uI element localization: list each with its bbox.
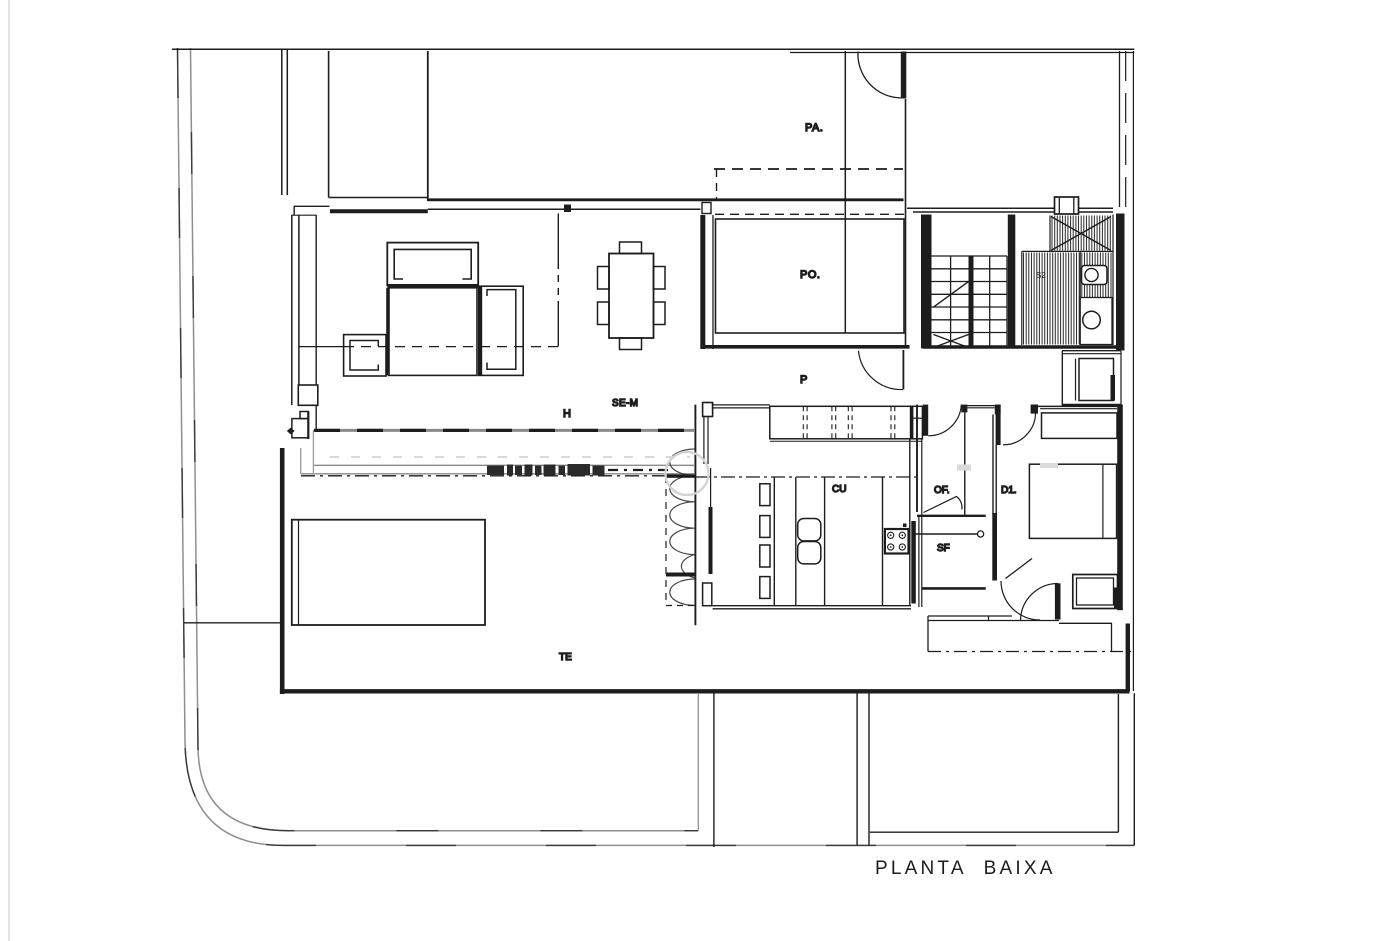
svg-text:P: P — [800, 374, 807, 386]
svg-text:PO.: PO. — [800, 269, 820, 281]
svg-text:H: H — [563, 408, 571, 420]
svg-text:PLANTA BAIXA: PLANTA BAIXA — [875, 858, 1056, 879]
svg-text:CU: CU — [832, 484, 846, 495]
svg-text:PA.: PA. — [805, 122, 823, 134]
svg-text:TE: TE — [559, 652, 572, 663]
svg-text:D1.: D1. — [1001, 485, 1017, 496]
svg-text:S2: S2 — [1036, 271, 1046, 280]
svg-text:SF: SF — [937, 543, 950, 554]
svg-text:SE-M: SE-M — [612, 398, 638, 409]
svg-text:OF.: OF. — [934, 485, 950, 496]
